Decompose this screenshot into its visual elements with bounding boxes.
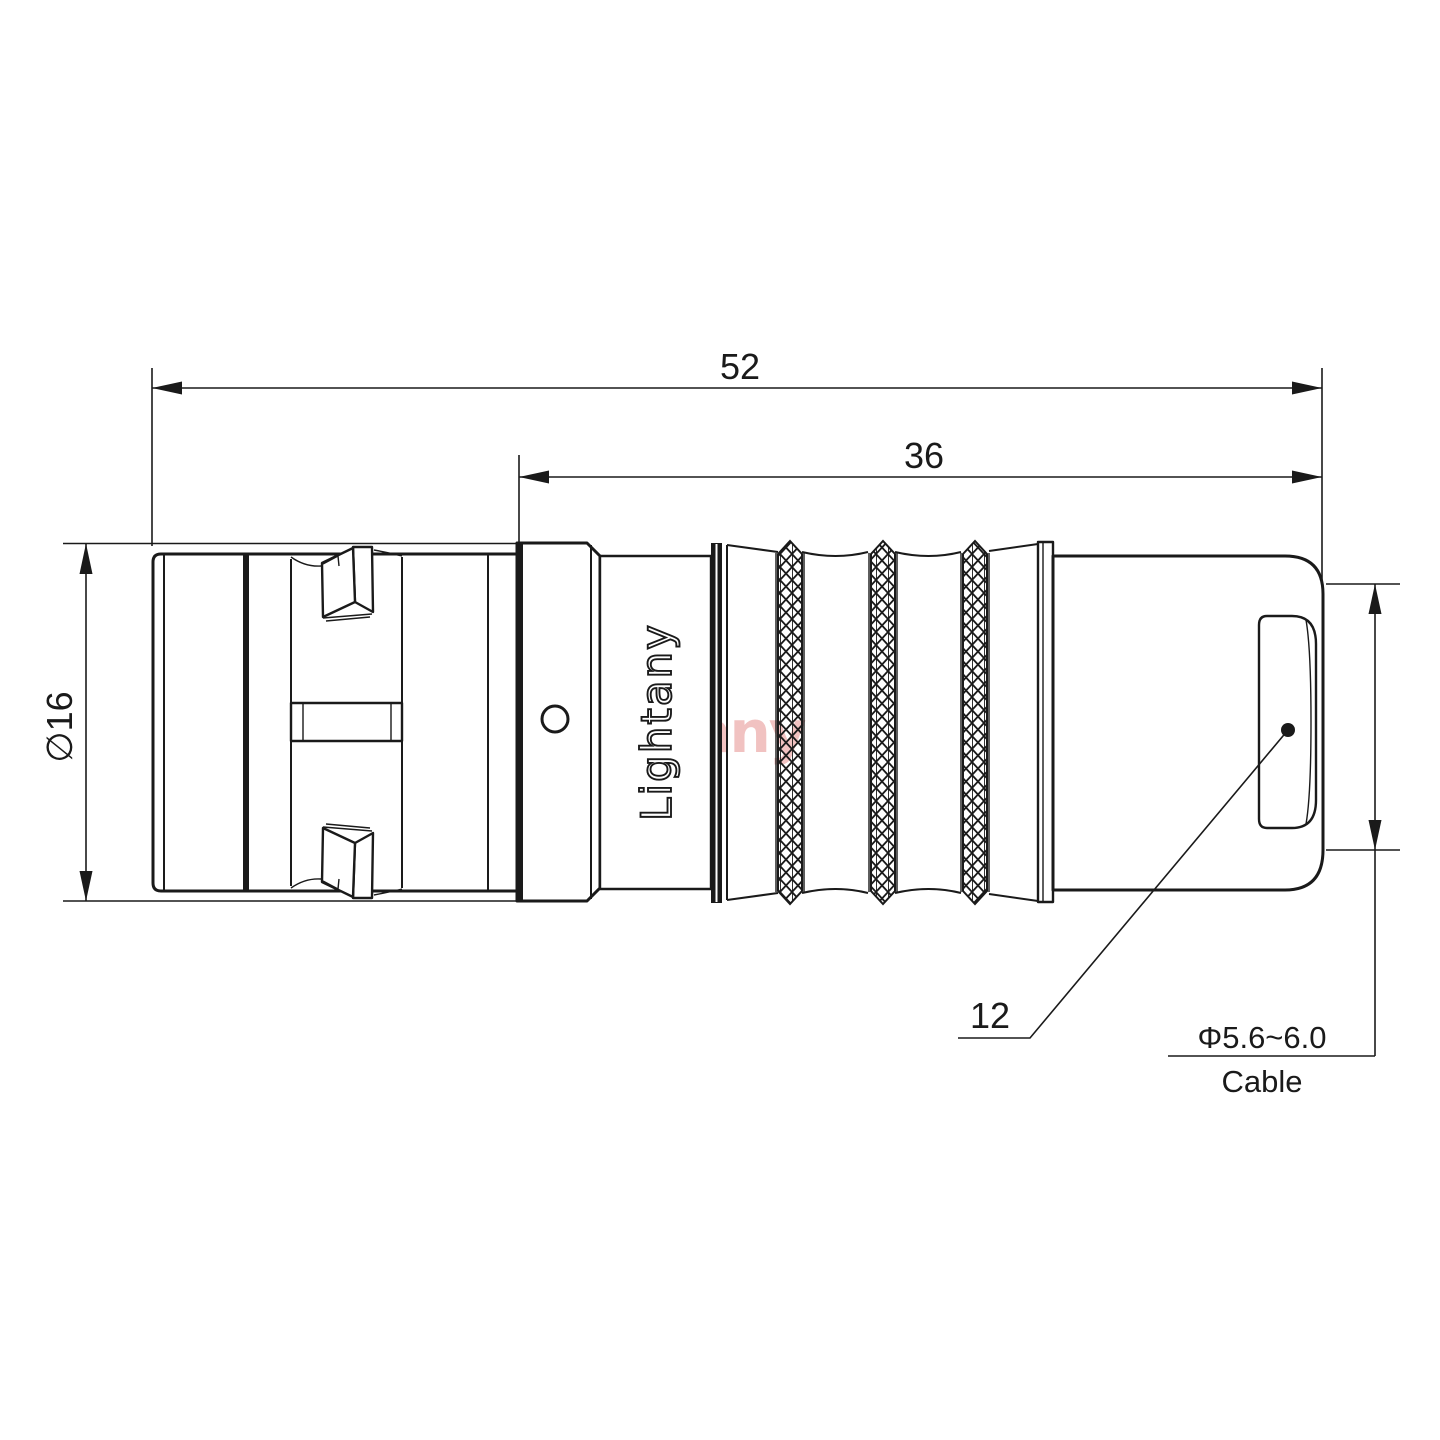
engraved-brand-text: Lightany (632, 623, 681, 821)
cable-diameter-range: Φ5.6~6.0 (1197, 1020, 1326, 1055)
dimension-52-value: 52 (720, 346, 760, 387)
shell-groove (243, 555, 249, 890)
coupling-nut (517, 543, 600, 901)
nut-front-band (517, 544, 523, 900)
barrel: Lightany (600, 556, 711, 889)
drawing-page: Lightany (0, 0, 1440, 1440)
label-cable-entry: Φ5.6~6.0 Cable (1168, 1020, 1375, 1099)
technical-drawing-canvas: Lightany (0, 0, 1440, 1440)
knurl-band-3 (961, 541, 989, 904)
dimension-rear-length: 36 (519, 435, 1322, 550)
knurl-band-2 (869, 541, 897, 904)
dimension-12-value: 12 (970, 995, 1010, 1036)
separator-ring (711, 543, 722, 903)
end-collar (1038, 542, 1053, 902)
boot-end-panel (1259, 616, 1316, 828)
cable-boot (1053, 556, 1323, 890)
cable-word: Cable (1222, 1064, 1303, 1099)
dimension-overall-length: 52 (152, 346, 1322, 584)
dimension-dia16-value: ∅16 (39, 691, 80, 762)
dimension-36-value: 36 (904, 435, 944, 476)
slot-bridge (291, 703, 402, 741)
vent-hole (542, 706, 568, 732)
dimension-boot-diameter (1326, 584, 1400, 1056)
knurl-band-1 (776, 541, 804, 904)
